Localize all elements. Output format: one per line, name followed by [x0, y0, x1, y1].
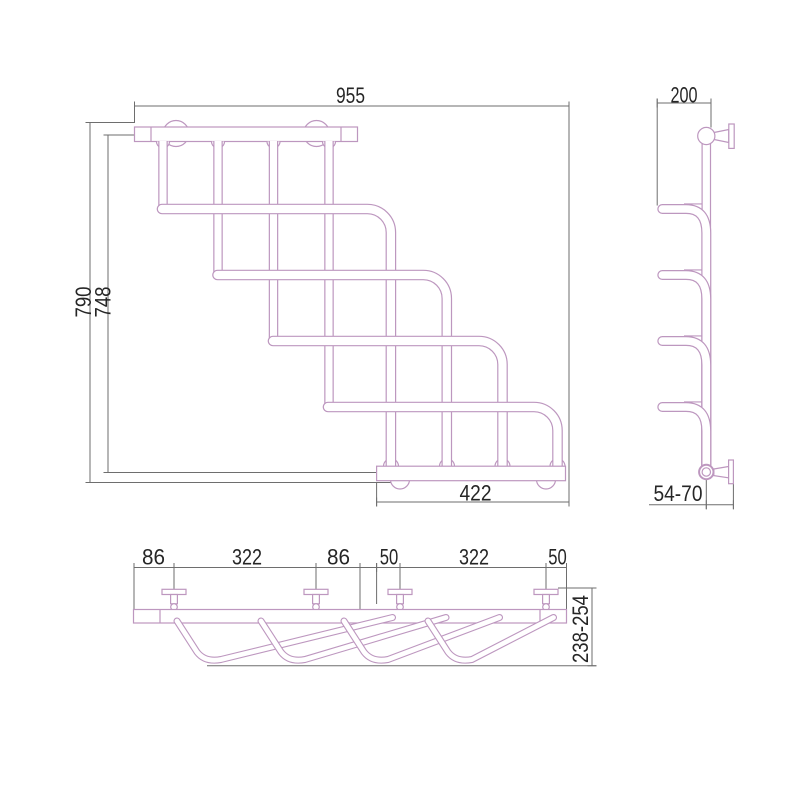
- svg-text:955: 955: [336, 83, 365, 108]
- svg-text:238-254: 238-254: [568, 595, 593, 663]
- svg-text:322: 322: [232, 545, 262, 570]
- svg-text:422: 422: [460, 481, 492, 506]
- svg-text:748: 748: [91, 287, 116, 318]
- svg-text:50: 50: [380, 545, 399, 570]
- svg-text:50: 50: [548, 545, 567, 570]
- svg-text:86: 86: [142, 545, 165, 570]
- svg-text:322: 322: [459, 545, 489, 570]
- svg-text:86: 86: [327, 545, 350, 570]
- svg-text:200: 200: [671, 83, 698, 108]
- svg-text:54-70: 54-70: [654, 481, 703, 506]
